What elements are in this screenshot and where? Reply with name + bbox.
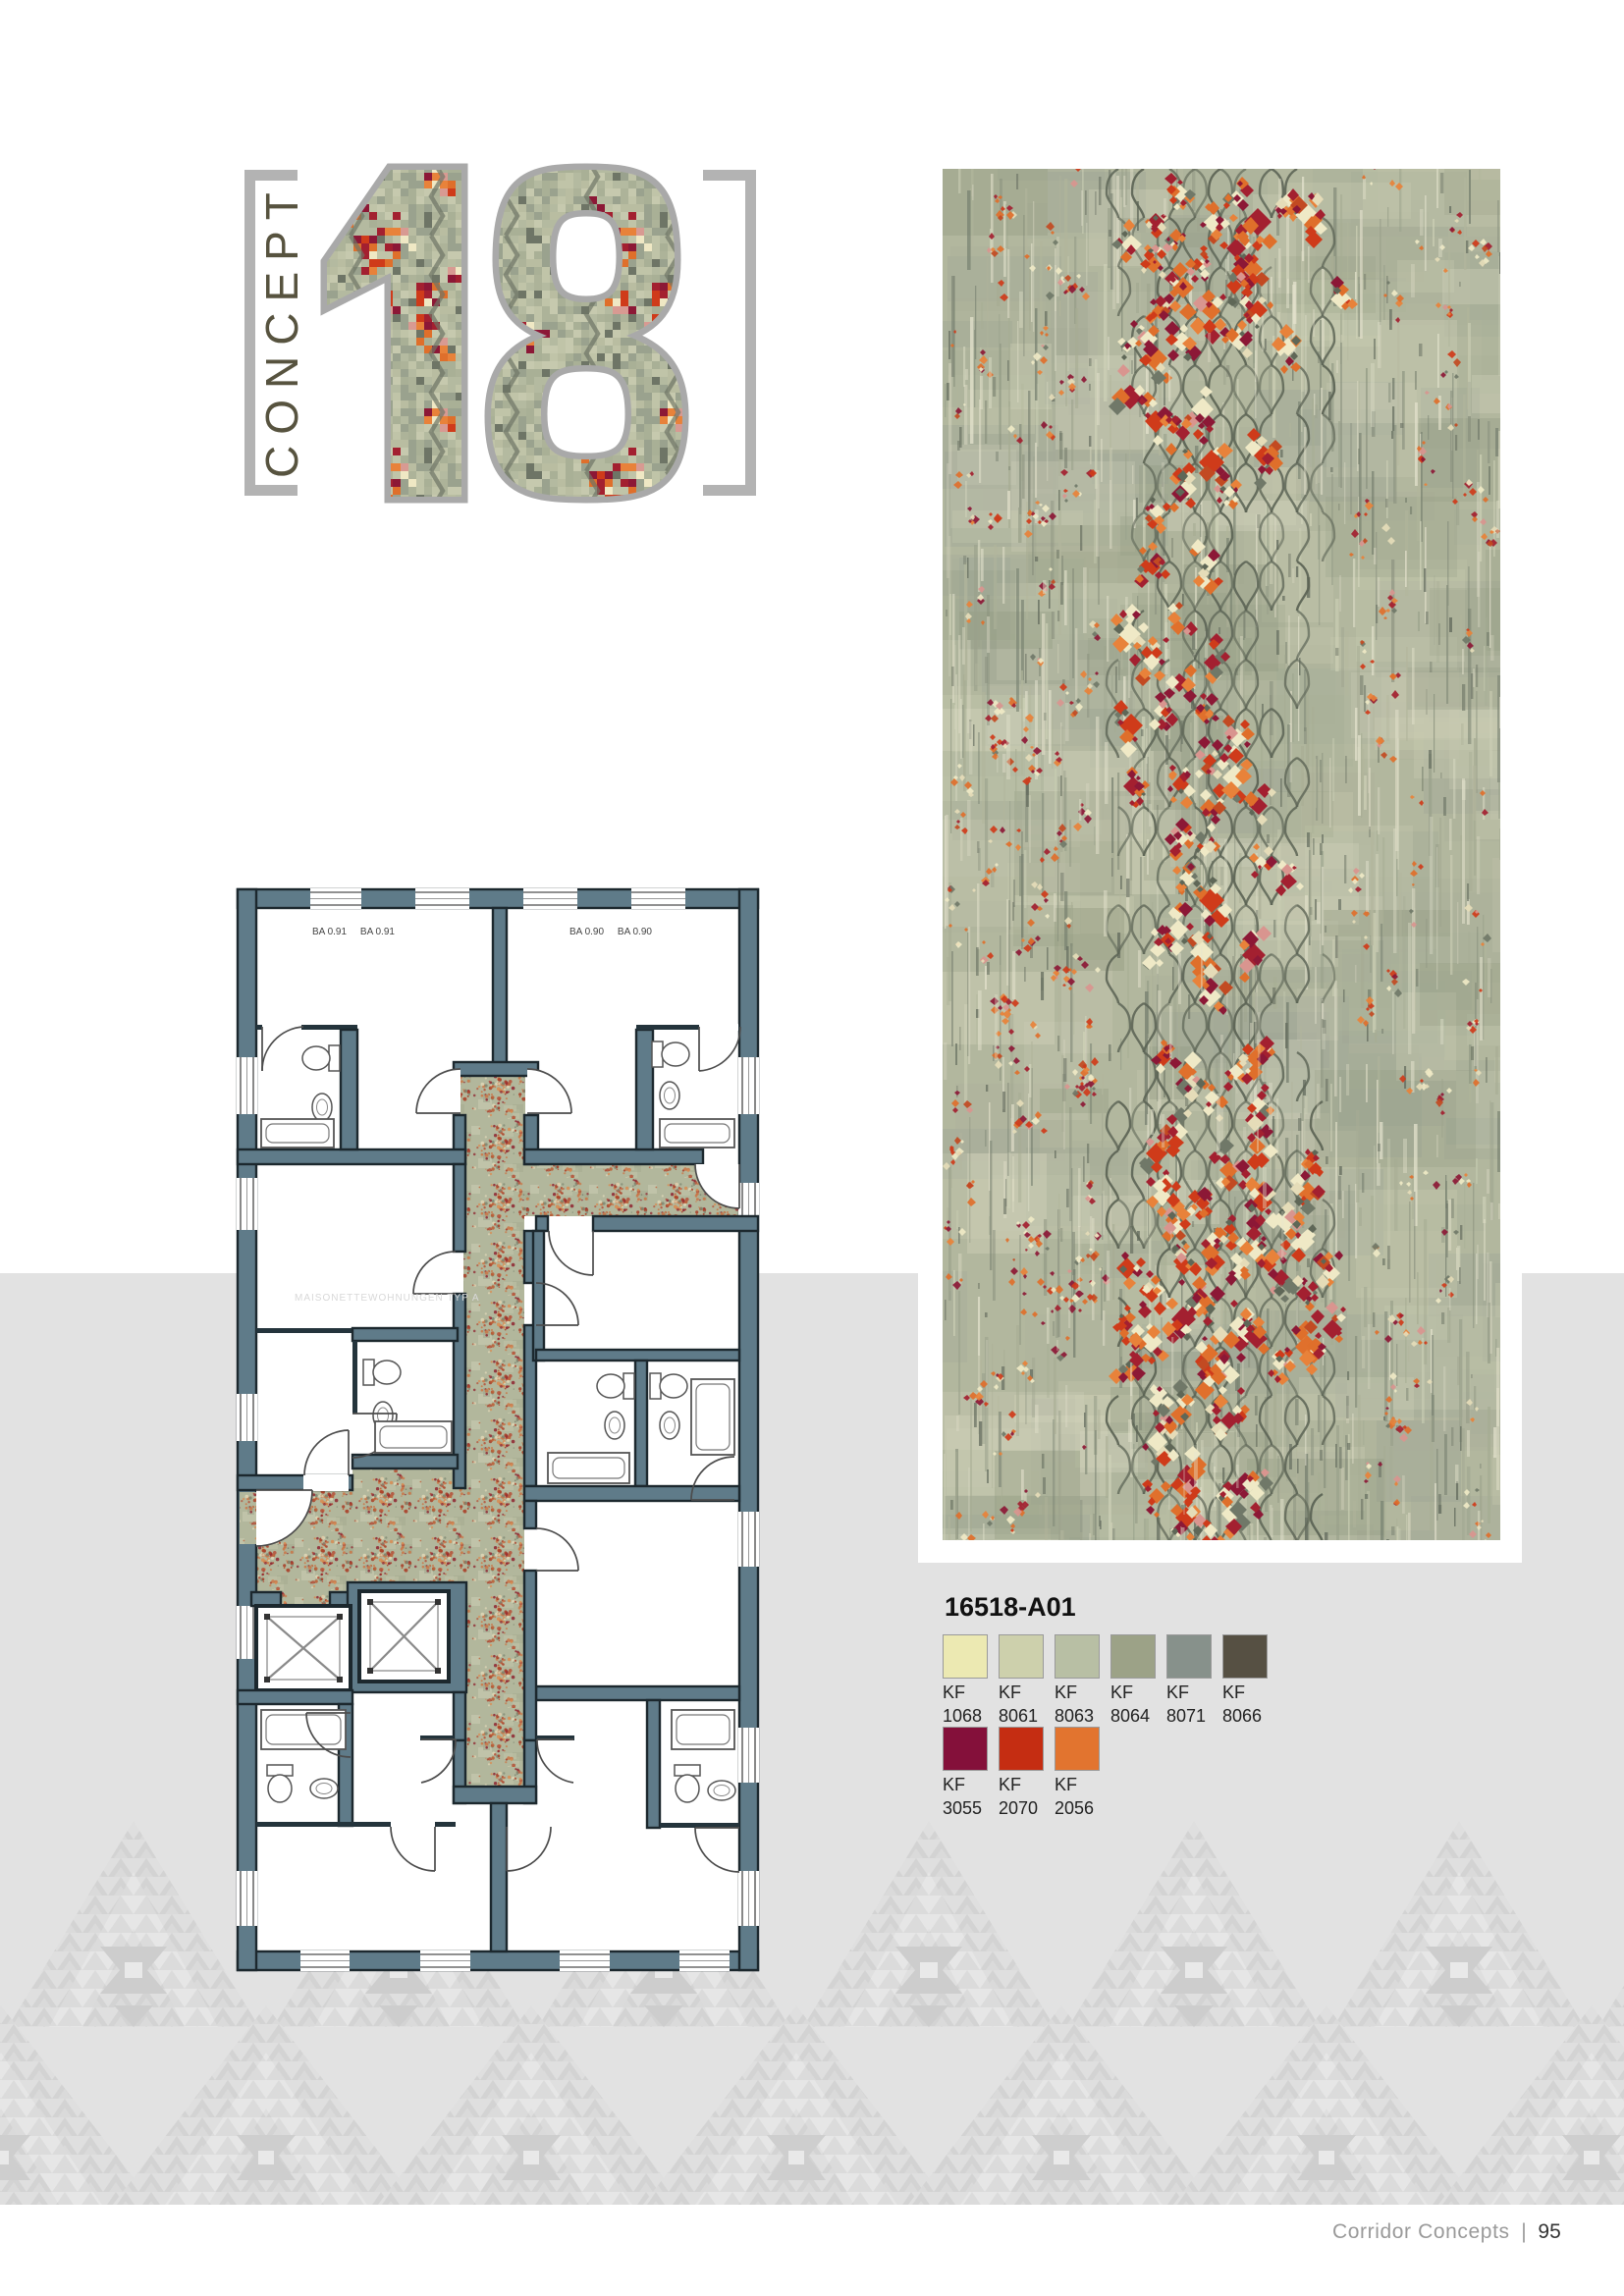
svg-text:BA 0.90 BA 0.90: BA 0.90 BA 0.90 [569,927,652,937]
svg-text:MAISONETTEWOHNUNGEN TYP A: MAISONETTEWOHNUNGEN TYP A [295,1293,480,1304]
svg-text:BA 0.91 BA 0.91: BA 0.91 BA 0.91 [312,927,395,937]
svg-text:CONCEPT: CONCEPT [256,182,307,478]
